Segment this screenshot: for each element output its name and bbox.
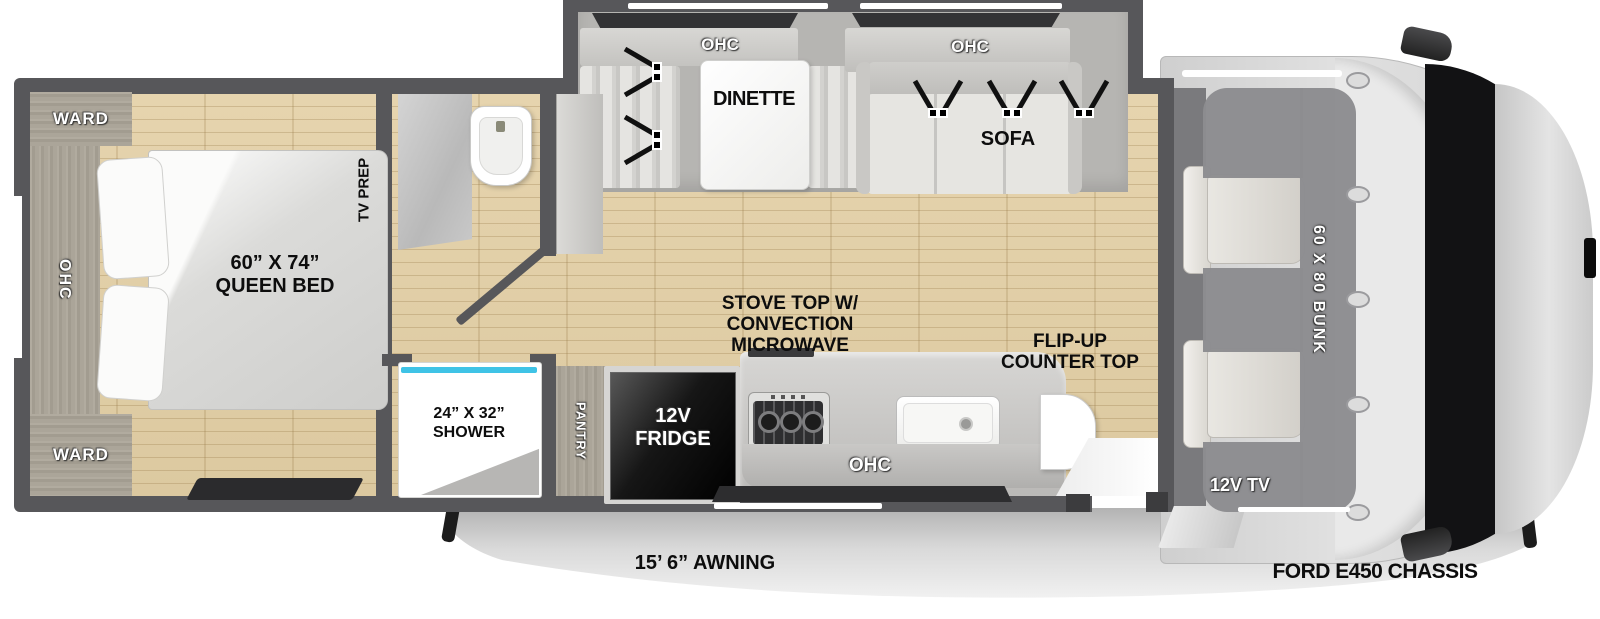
- bunk-label: 60 X 80 BUNK: [1302, 180, 1334, 400]
- stove-icon: [748, 392, 830, 452]
- shower-name: SHOWER: [404, 423, 534, 442]
- bunk-light: [1346, 396, 1370, 413]
- cab-interior-floor: [1174, 88, 1206, 512]
- fridge-name: FRIDGE: [611, 428, 735, 451]
- slideout-trim: [860, 3, 1062, 9]
- stove-line1: STOVE TOP W/: [700, 294, 880, 315]
- burner-icon: [758, 411, 780, 433]
- entry-threshold: [1066, 494, 1090, 512]
- bunk-overlay: [1203, 268, 1303, 352]
- wardrobe-bottom: WARD: [30, 414, 132, 496]
- pillow: [96, 284, 170, 402]
- seatbelt-icon: [622, 114, 666, 166]
- kitchen-trim: [714, 503, 882, 509]
- bed-type: QUEEN BED: [175, 275, 375, 298]
- side-mirror-top-icon: [1400, 25, 1455, 63]
- kitchen-window: [712, 486, 1012, 502]
- shower-wall-right: [540, 354, 556, 512]
- top-wall-left: [382, 78, 578, 94]
- front-fascia: [1495, 84, 1593, 534]
- burner-icon: [780, 411, 802, 433]
- bunk-overlay: [1203, 88, 1303, 178]
- front-wall: [1158, 78, 1174, 512]
- sofa-ohc-label: OHC: [910, 34, 1030, 60]
- cab-seat-passenger-cushion: [1207, 348, 1305, 438]
- sofa-armrest: [856, 62, 870, 194]
- bunk-light: [1346, 186, 1370, 203]
- seatbelt-icon: [912, 78, 964, 122]
- rug: [186, 478, 364, 500]
- body-trim-top: [1182, 70, 1342, 77]
- wardrobe-top: WARD: [30, 92, 132, 146]
- entry-threshold: [1146, 492, 1168, 512]
- shower-label: 24” X 32” SHOWER: [404, 404, 534, 442]
- bunk-light: [1346, 291, 1370, 308]
- faucet-icon: [959, 417, 973, 431]
- cab-seat-driver-cushion: [1207, 174, 1305, 264]
- shower-size: 24” X 32”: [404, 404, 534, 423]
- stove-line3: MICROWAVE: [700, 336, 880, 357]
- seatbelt-icon: [986, 78, 1038, 122]
- stove-line2: CONVECTION: [700, 315, 880, 336]
- wardrobe-bottom-label: WARD: [53, 445, 109, 465]
- awning-label: 15’ 6” AWNING: [590, 552, 820, 575]
- slideout-left-wall: [563, 0, 578, 94]
- hall-closet: [556, 94, 603, 254]
- toilet-icon: [470, 106, 532, 186]
- chassis-label: FORD E450 CHASSIS: [1255, 560, 1495, 584]
- sofa-window: [852, 13, 1060, 27]
- bath-wall-right: [540, 94, 556, 256]
- wardrobe-top-label: WARD: [53, 109, 109, 129]
- cab-tv-label: 12V TV: [1210, 475, 1310, 496]
- stove-label: STOVE TOP W/ CONVECTION MICROWAVE: [700, 294, 880, 357]
- body-trim-bottom: [1238, 507, 1350, 512]
- tv-prep-label: TV PREP: [350, 140, 378, 240]
- bed-size: 60” X 74”: [175, 252, 375, 275]
- flip-line2: COUNTER TOP: [972, 353, 1168, 374]
- dinette-table: [700, 60, 810, 190]
- queen-bed-label: 60” X 74” QUEEN BED: [175, 252, 375, 298]
- dinette-ohc-label: OHC: [660, 32, 780, 58]
- bunk-light: [1346, 504, 1370, 521]
- fridge-label: 12V FRIDGE: [611, 405, 735, 451]
- flip-up-counter-label: FLIP-UP COUNTER TOP: [972, 332, 1168, 374]
- dinette-window: [592, 13, 798, 28]
- shower-glass-door: [401, 367, 537, 373]
- sink-icon: [896, 396, 1000, 450]
- bunk-light: [1346, 72, 1370, 89]
- slideout-trim: [628, 3, 828, 9]
- pantry-label: PANTRY: [566, 388, 596, 474]
- fridge: 12V FRIDGE: [610, 372, 736, 500]
- sofa-back: [868, 62, 1072, 98]
- pillow: [96, 156, 170, 280]
- flip-line1: FLIP-UP: [972, 332, 1168, 353]
- dinette-label: DINETTE: [698, 88, 810, 111]
- fridge-volt: 12V: [611, 405, 735, 428]
- seatbelt-icon: [1058, 78, 1110, 122]
- burner-icon: [802, 411, 824, 433]
- rear-window: [14, 196, 22, 358]
- front-grille: [1584, 238, 1596, 278]
- rv-floorplan: 15’ 6” AWNING WARD OHC WARD 60” X 74” QU…: [0, 0, 1600, 619]
- sofa-label: SOFA: [958, 128, 1058, 151]
- kitchen-ohc-label: OHC: [820, 452, 920, 480]
- bath-partition: [398, 94, 472, 250]
- slideout-right-wall: [1128, 0, 1143, 94]
- bedroom-ohc-label: OHC: [48, 220, 80, 340]
- seatbelt-icon: [622, 46, 666, 98]
